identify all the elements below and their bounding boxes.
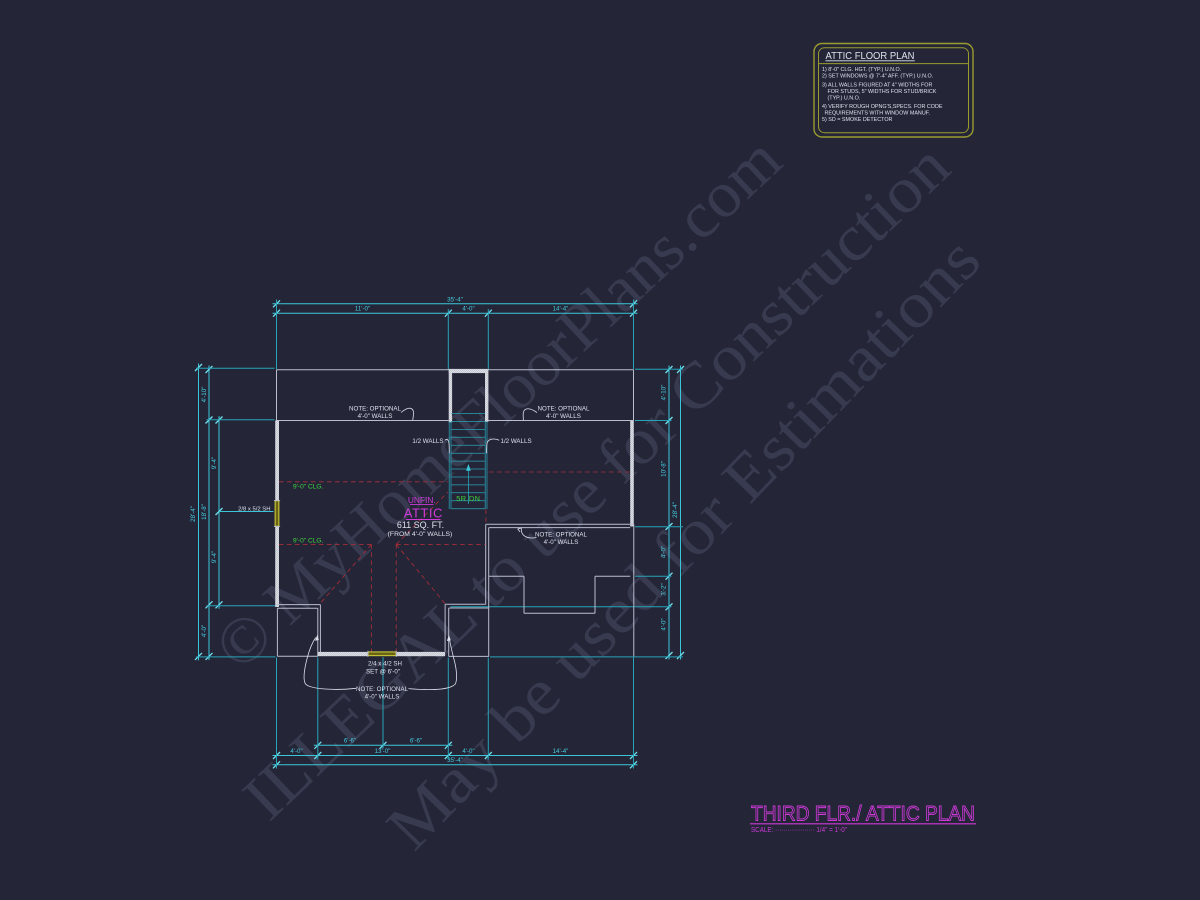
svg-text:1/2 WALLS: 1/2 WALLS xyxy=(501,438,532,445)
svg-text:FOR STUDS, 5" WIDTHS FOR STUD/: FOR STUDS, 5" WIDTHS FOR STUD/BRICK xyxy=(828,89,937,95)
svg-text:1) 8'-0" CLG. HGT. (TYP.) U.N: 1) 8'-0" CLG. HGT. (TYP.) U.N.O. xyxy=(822,67,901,73)
svg-text:ATTIC FLOOR PLAN: ATTIC FLOOR PLAN xyxy=(826,51,915,62)
svg-text:ILLEGAL to use for Constructio: ILLEGAL to use for Construction xyxy=(230,130,964,834)
svg-text:9'-4": 9'-4" xyxy=(211,457,218,469)
svg-text:4'-0" WALLS: 4'-0" WALLS xyxy=(358,413,393,420)
svg-text:4'-0": 4'-0" xyxy=(661,546,668,558)
svg-text:4'-0": 4'-0" xyxy=(290,748,302,755)
svg-text:2) SET WINDOWS @ 7'-4" AFF. (T: 2) SET WINDOWS @ 7'-4" AFF. (TYP.) U.N.O… xyxy=(822,74,933,80)
svg-text:4'-0": 4'-0" xyxy=(462,306,474,313)
svg-text:4'-0" WALLS: 4'-0" WALLS xyxy=(546,413,581,420)
svg-text:28'-4": 28'-4" xyxy=(672,502,679,518)
svg-text:(TYP.) U.N.O.: (TYP.) U.N.O. xyxy=(828,96,861,102)
svg-text:1/2 WALLS: 1/2 WALLS xyxy=(412,438,443,445)
svg-text:May be used for Estimations: May be used for Estimations xyxy=(373,224,994,864)
svg-text:9'-0" CLG.: 9'-0" CLG. xyxy=(293,484,324,491)
svg-text:3'-2": 3'-2" xyxy=(661,583,668,595)
svg-text:4) VERIFY ROUGH OPNG'S,SPECS.: 4) VERIFY ROUGH OPNG'S,SPECS. FOR CODE xyxy=(822,104,943,110)
svg-text:28'-4": 28'-4" xyxy=(190,506,197,522)
svg-text:4'-0": 4'-0" xyxy=(462,748,474,755)
svg-text:14'-4": 14'-4" xyxy=(553,748,569,755)
svg-text:ATTIC: ATTIC xyxy=(404,506,443,521)
svg-text:611 SQ. FT.: 611 SQ. FT. xyxy=(397,520,444,530)
svg-text:10'-8": 10'-8" xyxy=(661,461,668,477)
svg-text:14'-4": 14'-4" xyxy=(553,306,569,313)
svg-text:REQUIREMENTS WITH WINDOW MANUF: REQUIREMENTS WITH WINDOW MANUF. xyxy=(825,111,930,117)
svg-text:UNFIN.: UNFIN. xyxy=(408,495,436,505)
svg-text:4'-0" WALLS: 4'-0" WALLS xyxy=(365,694,400,701)
svg-text:(FROM 4'-0" WALLS): (FROM 4'-0" WALLS) xyxy=(388,531,453,538)
svg-text:13'-0": 13'-0" xyxy=(375,748,391,755)
svg-text:SET @ 6'-0": SET @ 6'-0" xyxy=(366,669,400,676)
svg-text:3) ALL WALLS FIGURED AT 4" WID: 3) ALL WALLS FIGURED AT 4" WIDTHS FOR xyxy=(822,83,932,89)
svg-text:2/8 x 5/2 SH: 2/8 x 5/2 SH xyxy=(238,507,270,513)
svg-text:NOTE: OPTIONAL: NOTE: OPTIONAL xyxy=(349,406,401,413)
svg-text:NOTE: OPTIONAL: NOTE: OPTIONAL xyxy=(538,406,590,413)
svg-text:THIRD FLR./ ATTIC PLAN: THIRD FLR./ ATTIC PLAN xyxy=(751,802,975,826)
svg-text:5R DN: 5R DN xyxy=(456,494,480,503)
svg-text:4'-10": 4'-10" xyxy=(661,385,668,401)
svg-text:11'-0": 11'-0" xyxy=(355,306,370,313)
svg-text:SCALE: ··················· 1/4: SCALE: ··················· 1/4" = 1'-0" xyxy=(751,827,847,834)
svg-text:6'-6": 6'-6" xyxy=(344,738,356,745)
svg-text:35'-4": 35'-4" xyxy=(447,757,463,764)
svg-text:35'-4": 35'-4" xyxy=(447,296,463,303)
svg-text:NOTE: OPTIONAL: NOTE: OPTIONAL xyxy=(535,532,587,539)
svg-text:4'-10": 4'-10" xyxy=(201,387,208,403)
svg-text:9'-0" CLG.: 9'-0" CLG. xyxy=(293,538,324,545)
svg-text:NOTE: OPTIONAL: NOTE: OPTIONAL xyxy=(356,686,408,693)
svg-text:4'-0": 4'-0" xyxy=(201,625,208,637)
svg-text:2/4 x 4/2 SH: 2/4 x 4/2 SH xyxy=(368,661,402,668)
svg-text:6'-6": 6'-6" xyxy=(410,738,422,745)
svg-text:9'-4": 9'-4" xyxy=(211,551,218,563)
svg-text:4'-0": 4'-0" xyxy=(661,618,668,630)
svg-text:5) SD = SMOKE DETECTOR: 5) SD = SMOKE DETECTOR xyxy=(822,117,893,123)
svg-text:18'-8": 18'-8" xyxy=(201,504,208,520)
svg-text:4'-0" WALLS: 4'-0" WALLS xyxy=(544,539,579,546)
